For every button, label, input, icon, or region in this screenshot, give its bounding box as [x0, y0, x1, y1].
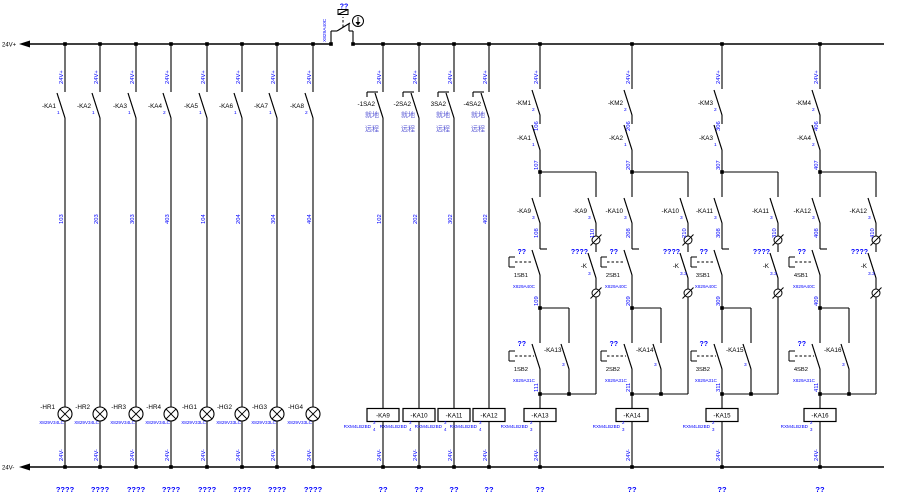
mode-remote-label: 远程: [401, 124, 415, 133]
contact-label: -KA10: [605, 208, 623, 215]
voltage-tag: 24V+: [534, 70, 540, 84]
unknown-label: ??: [517, 341, 526, 348]
pushbutton-nc: [532, 250, 540, 275]
voltage-tag: 24V-: [448, 449, 454, 461]
coil-type-tag: RXM4LB2BD: [380, 424, 408, 429]
wire-number: 410: [870, 228, 876, 238]
contact-pin: 3.3: [770, 271, 777, 277]
coil-label: -KA12: [480, 412, 498, 419]
lamp-label: -HR3: [111, 404, 126, 411]
selector-label: -4SA2: [463, 101, 481, 108]
coil-pin: 3: [712, 427, 715, 432]
mode-local-label: 就地: [471, 110, 485, 119]
contact-pin: 3.3: [868, 271, 875, 277]
lamp-label: -HR1: [40, 404, 55, 411]
footer-tag: ??: [627, 485, 637, 494]
lamp-label: -HG3: [252, 404, 268, 411]
contact-pin: 3: [744, 362, 747, 368]
voltage-tag: 24V-: [814, 449, 820, 461]
voltage-tag: 24V+: [716, 70, 722, 84]
unknown-label: ????: [753, 249, 770, 256]
wire-number: 204: [236, 214, 242, 224]
coil-pin: 4: [409, 427, 412, 432]
coil-pin: 3: [810, 427, 813, 432]
coil-label: -KA14: [623, 412, 641, 419]
voltage-tag: 24V-: [716, 449, 722, 461]
coil-type-tag: RXM4LB2BD: [415, 424, 443, 429]
coil-label: -KA10: [410, 412, 428, 419]
voltage-tag: 24V+: [94, 70, 100, 84]
wire-number: 311: [716, 383, 722, 392]
footer-tag: ????: [91, 485, 110, 494]
voltage-tag: 24V+: [59, 70, 65, 84]
coil-label: -KA11: [446, 412, 463, 419]
footer-tag: ????: [304, 485, 323, 494]
contact-pin: 2: [714, 107, 717, 113]
connector-tag: X829A40C: [513, 284, 536, 289]
voltage-tag: 24V+: [413, 70, 419, 84]
wire-number: 406: [814, 121, 820, 131]
wire-number: 211: [626, 383, 632, 392]
unknown-label: ??: [797, 249, 806, 256]
contact-label: -KA12: [793, 208, 811, 215]
connector-tag: X829V34LC: [74, 420, 99, 425]
coil-type-tag: RXM4LB2BD: [781, 424, 809, 429]
estop-cable-tag: X829A40C: [322, 18, 328, 42]
wire-number: 202: [413, 214, 419, 224]
unknown-label: ??: [699, 249, 708, 256]
pushbutton-nc: [812, 250, 820, 275]
footer-tag: ????: [233, 485, 252, 494]
contact-pin: 3: [588, 271, 591, 277]
mode-remote-label: 远程: [436, 124, 450, 133]
voltage-tag: 24V+: [130, 70, 136, 84]
voltage-tag: 24V-: [59, 449, 65, 461]
schematic-canvas: 24V+24V-??X829A40C24V+-KA11103-HR1X829V3…: [0, 0, 898, 496]
rail-label: 24V-: [2, 466, 14, 472]
wire-number: 111: [534, 383, 540, 392]
contact-pin: 2: [163, 110, 166, 116]
contact-pin: 3: [588, 215, 591, 221]
button-label: 4SB1: [794, 273, 808, 279]
voltage-tag: 24V-: [307, 449, 313, 461]
wire-number: 106: [534, 121, 540, 131]
contact-label: -KA2: [609, 135, 623, 142]
button-label: 2SB2: [606, 367, 620, 373]
voltage-tag: 24V+: [165, 70, 171, 84]
mode-remote-label: 远程: [365, 124, 379, 133]
unknown-label: ??: [609, 249, 618, 256]
unknown-label: ????: [851, 249, 868, 256]
voltage-tag: 24V-: [483, 449, 489, 461]
wire-number: 302: [448, 214, 454, 224]
wire-number: 102: [377, 214, 383, 224]
unknown-label: ????: [571, 249, 588, 256]
wire-number: 206: [626, 121, 632, 131]
coil-pin: 4: [444, 427, 447, 432]
wire-number: 110: [590, 229, 596, 238]
footer-tag: ????: [198, 485, 217, 494]
wire-number: 408: [814, 228, 820, 238]
connector-tag: X829A31C: [793, 378, 816, 383]
voltage-tag: 24V+: [483, 70, 489, 84]
contact-pin: 3: [680, 215, 683, 221]
contact-label: -KA13: [544, 347, 562, 354]
contact-label: -KA2: [77, 103, 91, 110]
lamp-label: -HG2: [217, 404, 233, 411]
coil-label: -KA16: [811, 412, 829, 419]
contact-label: -KA3: [699, 135, 713, 142]
contact-pin: 3: [812, 215, 815, 221]
wire-number: 308: [716, 228, 722, 238]
footer-tag: ??: [535, 485, 545, 494]
contact-label: -KM1: [516, 100, 532, 107]
wire-number: 104: [201, 214, 207, 224]
contact-label: -KA4: [148, 103, 162, 110]
wire-number: 403: [165, 214, 171, 224]
contact-label: -K: [861, 263, 868, 270]
wire-number: 306: [716, 121, 722, 131]
footer-tag: ??: [484, 485, 494, 494]
connector-tag: X829V34LC: [110, 420, 135, 425]
contact-pin: 2: [812, 107, 815, 113]
lamp-label: -HG1: [182, 404, 198, 411]
contact-label: -KA14: [636, 347, 654, 354]
wire-number: 307: [716, 160, 722, 170]
schematic-page: 24V+24V-??X829A40C24V+-KA11103-HR1X829V3…: [0, 0, 898, 496]
wire-number: 404: [307, 214, 313, 224]
coil-pin: 4: [373, 427, 376, 432]
pushbutton-nc: [714, 250, 722, 275]
rail-arrow-icon: [19, 464, 30, 471]
selector-label: -1SA2: [357, 101, 375, 108]
contact-label: -KA12: [849, 208, 867, 215]
footer-tag: ????: [56, 485, 75, 494]
coil-pin: 4: [479, 427, 482, 432]
unknown-label: ??: [609, 341, 618, 348]
wire-number: 208: [626, 228, 632, 238]
coil-label: -KA9: [376, 412, 390, 419]
contact-label: -KA3: [113, 103, 127, 110]
footer-tag: ??: [378, 485, 388, 494]
voltage-tag: 24V+: [814, 70, 820, 84]
button-label: 3SB1: [696, 273, 710, 279]
voltage-tag: 24V-: [236, 449, 242, 461]
connector-tag: X829A31C: [605, 378, 628, 383]
connector-tag: X829V33LC: [216, 420, 241, 425]
coil-pin: 3: [622, 427, 625, 432]
contact-label: -KA8: [290, 103, 304, 110]
unknown-label: ??: [797, 341, 806, 348]
contact-label: -KA11: [696, 208, 714, 215]
connector-tag: X829V33LC: [287, 420, 312, 425]
connector-tag: X829A31C: [695, 378, 718, 383]
wire-number: 210: [682, 228, 688, 238]
footer-tag: ??: [449, 485, 459, 494]
contact-pin: 2: [812, 142, 815, 148]
estop-label: ??: [340, 4, 349, 11]
voltage-tag: 24V-: [94, 449, 100, 461]
voltage-tag: 24V-: [626, 449, 632, 461]
contact-pin: 3: [714, 215, 717, 221]
contact-label: -KA4: [797, 135, 811, 142]
contact-pin: 1: [532, 142, 535, 148]
voltage-tag: 24V+: [271, 70, 277, 84]
footer-tag: ??: [815, 485, 825, 494]
button-label: 1SB2: [514, 367, 528, 373]
mode-local-label: 就地: [401, 110, 415, 119]
contact-label: -K: [581, 263, 588, 270]
lamp-label: -HR4: [146, 404, 161, 411]
connector-tag: X829A40C: [793, 284, 816, 289]
unknown-label: ????: [663, 249, 680, 256]
selector-label: -2SA2: [393, 101, 411, 108]
lamp-label: -HR2: [75, 404, 90, 411]
coil-type-tag: RXM4LB2BD: [593, 424, 621, 429]
connector-tag: X829V34LC: [145, 420, 170, 425]
wire-number: 402: [483, 214, 489, 224]
contact-label: -KA1: [517, 135, 531, 142]
voltage-tag: 24V-: [271, 449, 277, 461]
contact-pin: 1: [234, 110, 237, 116]
rail-arrow-icon: [19, 41, 30, 48]
wire-number: 409: [814, 296, 820, 306]
contact-label: -KA10: [661, 208, 679, 215]
contact-label: -KA6: [219, 103, 233, 110]
selector-label: 3SA2: [431, 101, 447, 108]
pushbutton-nc: [624, 250, 632, 275]
wire-number: 109: [534, 296, 540, 306]
voltage-tag: 24V+: [626, 70, 632, 84]
contact-label: -KM4: [796, 100, 812, 107]
contact-pin: 3: [532, 215, 535, 221]
voltage-tag: 24V+: [201, 70, 207, 84]
wire-number: 108: [534, 228, 540, 238]
footer-tag: ????: [127, 485, 146, 494]
lamp-label: -HG4: [288, 404, 304, 411]
voltage-tag: 24V-: [534, 449, 540, 461]
connector-tag: X829V33LC: [251, 420, 276, 425]
wire-number: 309: [716, 296, 722, 306]
wire-number: 209: [626, 296, 632, 306]
wire-number: 303: [130, 214, 136, 224]
wire-number: 107: [534, 160, 540, 170]
mode-local-label: 就地: [365, 110, 379, 119]
voltage-tag: 24V+: [448, 70, 454, 84]
wire-number: 407: [814, 160, 820, 170]
button-label: 1SB1: [514, 273, 528, 279]
voltage-tag: 24V-: [377, 449, 383, 461]
unknown-label: ??: [699, 341, 708, 348]
contact-pin: 2: [624, 107, 627, 113]
contact-pin: 1: [714, 142, 717, 148]
coil-type-tag: RXM4LB2BD: [683, 424, 711, 429]
wire-number: 207: [626, 160, 632, 170]
contact-label: -KM2: [608, 100, 624, 107]
contact-pin: 1: [269, 110, 272, 116]
contact-label: -K: [673, 263, 680, 270]
mode-local-label: 就地: [436, 110, 450, 119]
coil-label: -KA15: [713, 412, 731, 419]
voltage-tag: 24V+: [307, 70, 313, 84]
wire-number: 304: [271, 214, 277, 224]
contact-pin: 3: [654, 362, 657, 368]
connector-tag: X829V34LC: [39, 420, 64, 425]
wire-number: 411: [814, 383, 820, 392]
contact-label: -KA5: [184, 103, 198, 110]
rail-label: 24V+: [2, 43, 17, 49]
coil-type-tag: RXM4LB2BD: [344, 424, 372, 429]
contact-label: -K: [763, 263, 770, 270]
coil-type-tag: RXM4LB2BD: [450, 424, 478, 429]
contact-pin: 1: [199, 110, 202, 116]
coil-pin: 3: [530, 427, 533, 432]
footer-tag: ??: [717, 485, 727, 494]
contact-label: -KA16: [824, 347, 842, 354]
contact-label: -KA9: [517, 208, 531, 215]
voltage-tag: 24V+: [236, 70, 242, 84]
contact-pin: 2: [305, 110, 308, 116]
voltage-tag: 24V-: [165, 449, 171, 461]
coil-label: -KA13: [531, 412, 549, 419]
button-label: 3SB2: [696, 367, 710, 373]
footer-tag: ??: [414, 485, 424, 494]
voltage-tag: 24V-: [413, 449, 419, 461]
contact-pin: 3: [868, 215, 871, 221]
contact-pin: 1: [128, 110, 131, 116]
footer-tag: ????: [268, 485, 287, 494]
contact-pin: 3: [842, 362, 845, 368]
button-label: 2SB1: [606, 273, 620, 279]
mode-remote-label: 远程: [471, 124, 485, 133]
button-label: 4SB2: [794, 367, 808, 373]
contact-label: -KA7: [254, 103, 268, 110]
unknown-label: ??: [517, 249, 526, 256]
wire-number: 203: [94, 214, 100, 224]
contact-pin: 1: [57, 110, 60, 116]
footer-tag: ????: [162, 485, 181, 494]
contact-label: -KM3: [698, 100, 714, 107]
contact-pin: 2: [532, 107, 535, 113]
connector-tag: X829A31C: [513, 378, 536, 383]
contact-pin: 3: [770, 215, 773, 221]
contact-label: -KA1: [42, 103, 56, 110]
contact-pin: 3: [562, 362, 565, 368]
connector-tag: X829A40C: [695, 284, 718, 289]
contact-pin: 3: [624, 215, 627, 221]
voltage-tag: 24V-: [201, 449, 207, 461]
contact-label: -KA11: [752, 208, 770, 215]
connector-tag: X829V33LC: [181, 420, 206, 425]
contact-pin: 1: [92, 110, 95, 116]
contact-pin: 1: [624, 142, 627, 148]
voltage-tag: 24V-: [130, 449, 136, 461]
contact-label: -KA15: [726, 347, 744, 354]
contact-pin: 3.3: [680, 271, 687, 277]
voltage-tag: 24V+: [377, 70, 383, 84]
connector-tag: X829A40C: [605, 284, 628, 289]
wire-number: 103: [59, 214, 65, 224]
contact-label: -KA9: [573, 208, 587, 215]
wire-number: 310: [772, 228, 778, 238]
coil-type-tag: RXM4LB2BD: [501, 424, 529, 429]
